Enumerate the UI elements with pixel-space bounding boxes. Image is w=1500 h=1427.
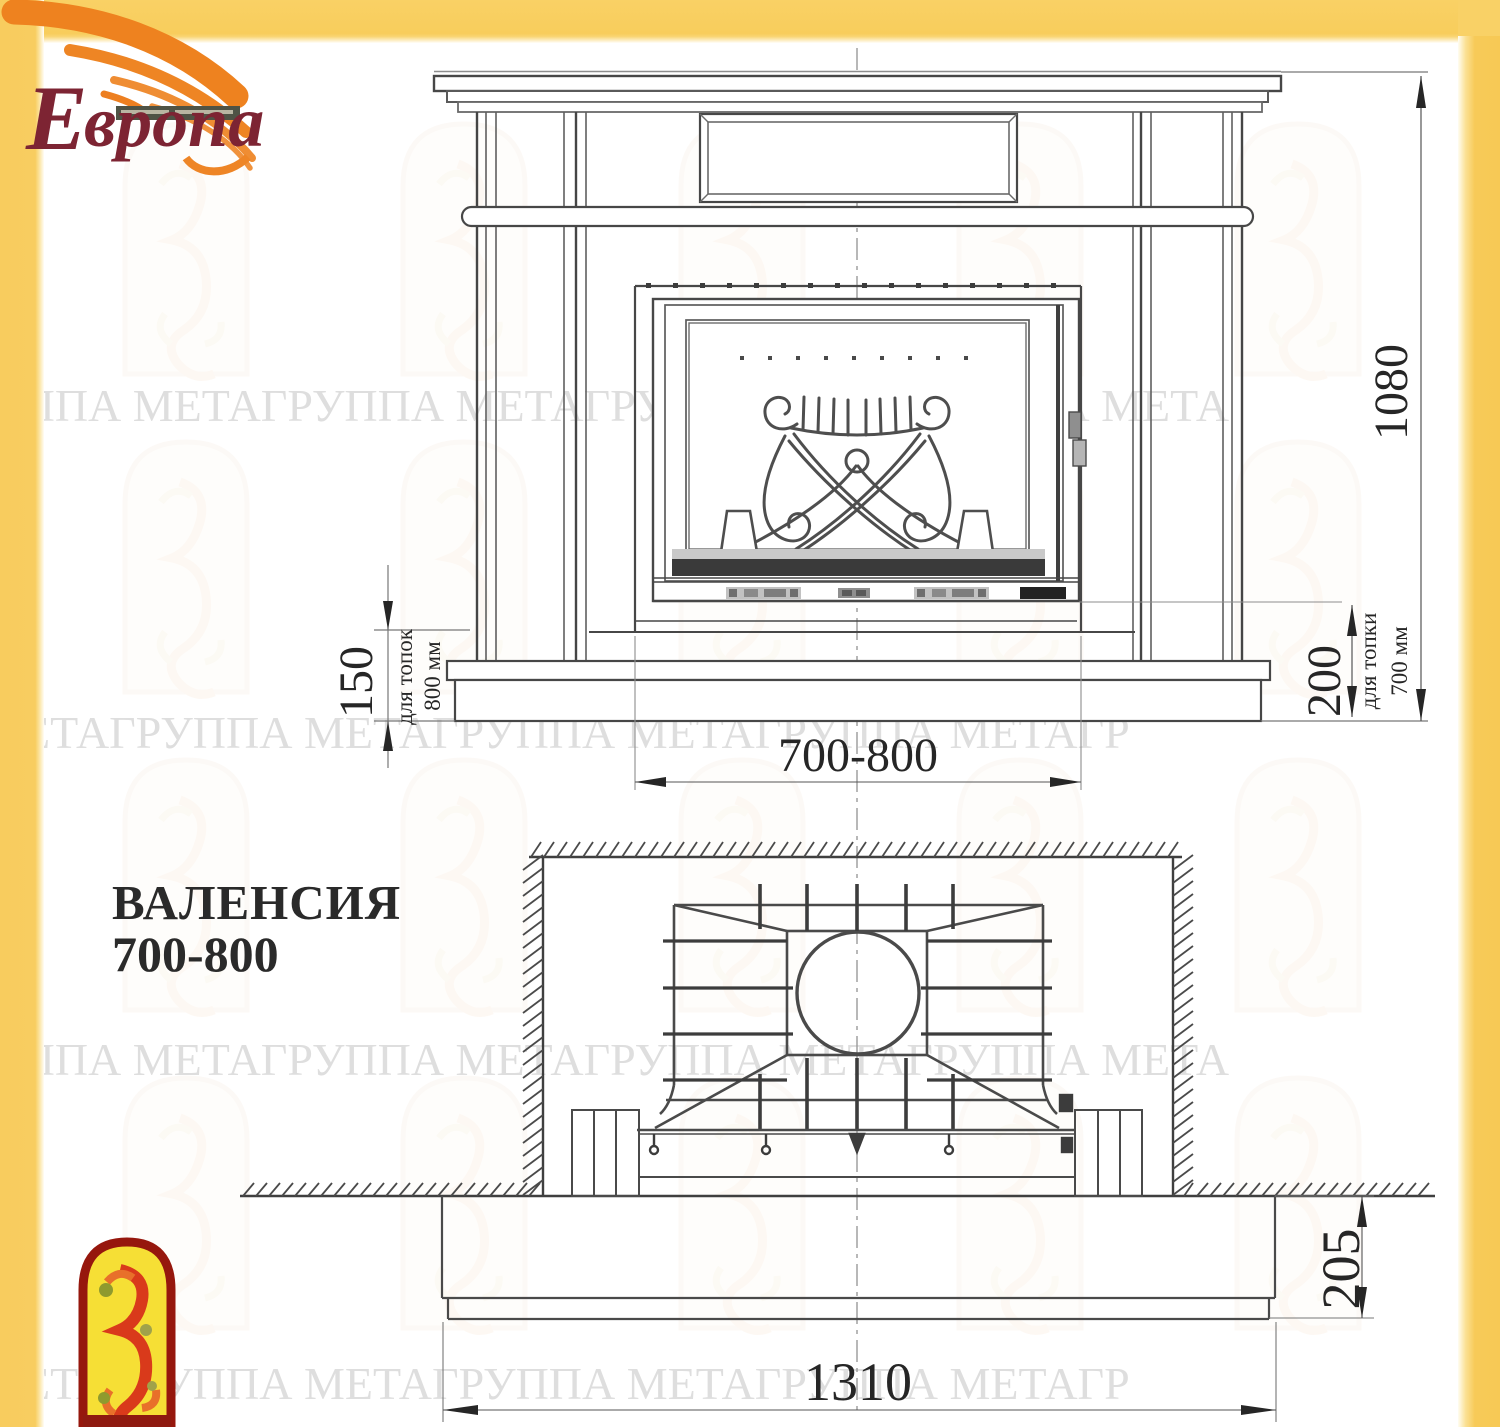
- svg-text:ГРУППА МЕТАГРУППА МЕТАГРУППА М: ГРУППА МЕТАГРУППА МЕТАГРУППА МЕТАГРУППА …: [0, 1034, 1229, 1085]
- svg-text:Е: Е: [25, 67, 87, 169]
- svg-text:ВАЛЕНСИЯ: ВАЛЕНСИЯ: [112, 875, 401, 930]
- svg-text:205: 205: [1311, 1229, 1371, 1310]
- svg-text:700-800: 700-800: [778, 729, 938, 782]
- svg-text:для топок: для топок: [392, 628, 417, 725]
- svg-text:для топки: для топки: [1356, 613, 1381, 710]
- svg-text:200: 200: [1298, 645, 1351, 717]
- svg-text:700 мм: 700 мм: [1387, 626, 1412, 696]
- svg-text:800 мм: 800 мм: [420, 641, 445, 711]
- svg-text:1310: 1310: [804, 1352, 912, 1412]
- svg-text:1080: 1080: [1365, 344, 1418, 440]
- svg-text:700-800: 700-800: [112, 926, 279, 982]
- svg-text:вропа: вропа: [84, 82, 264, 162]
- svg-text:150: 150: [330, 646, 383, 718]
